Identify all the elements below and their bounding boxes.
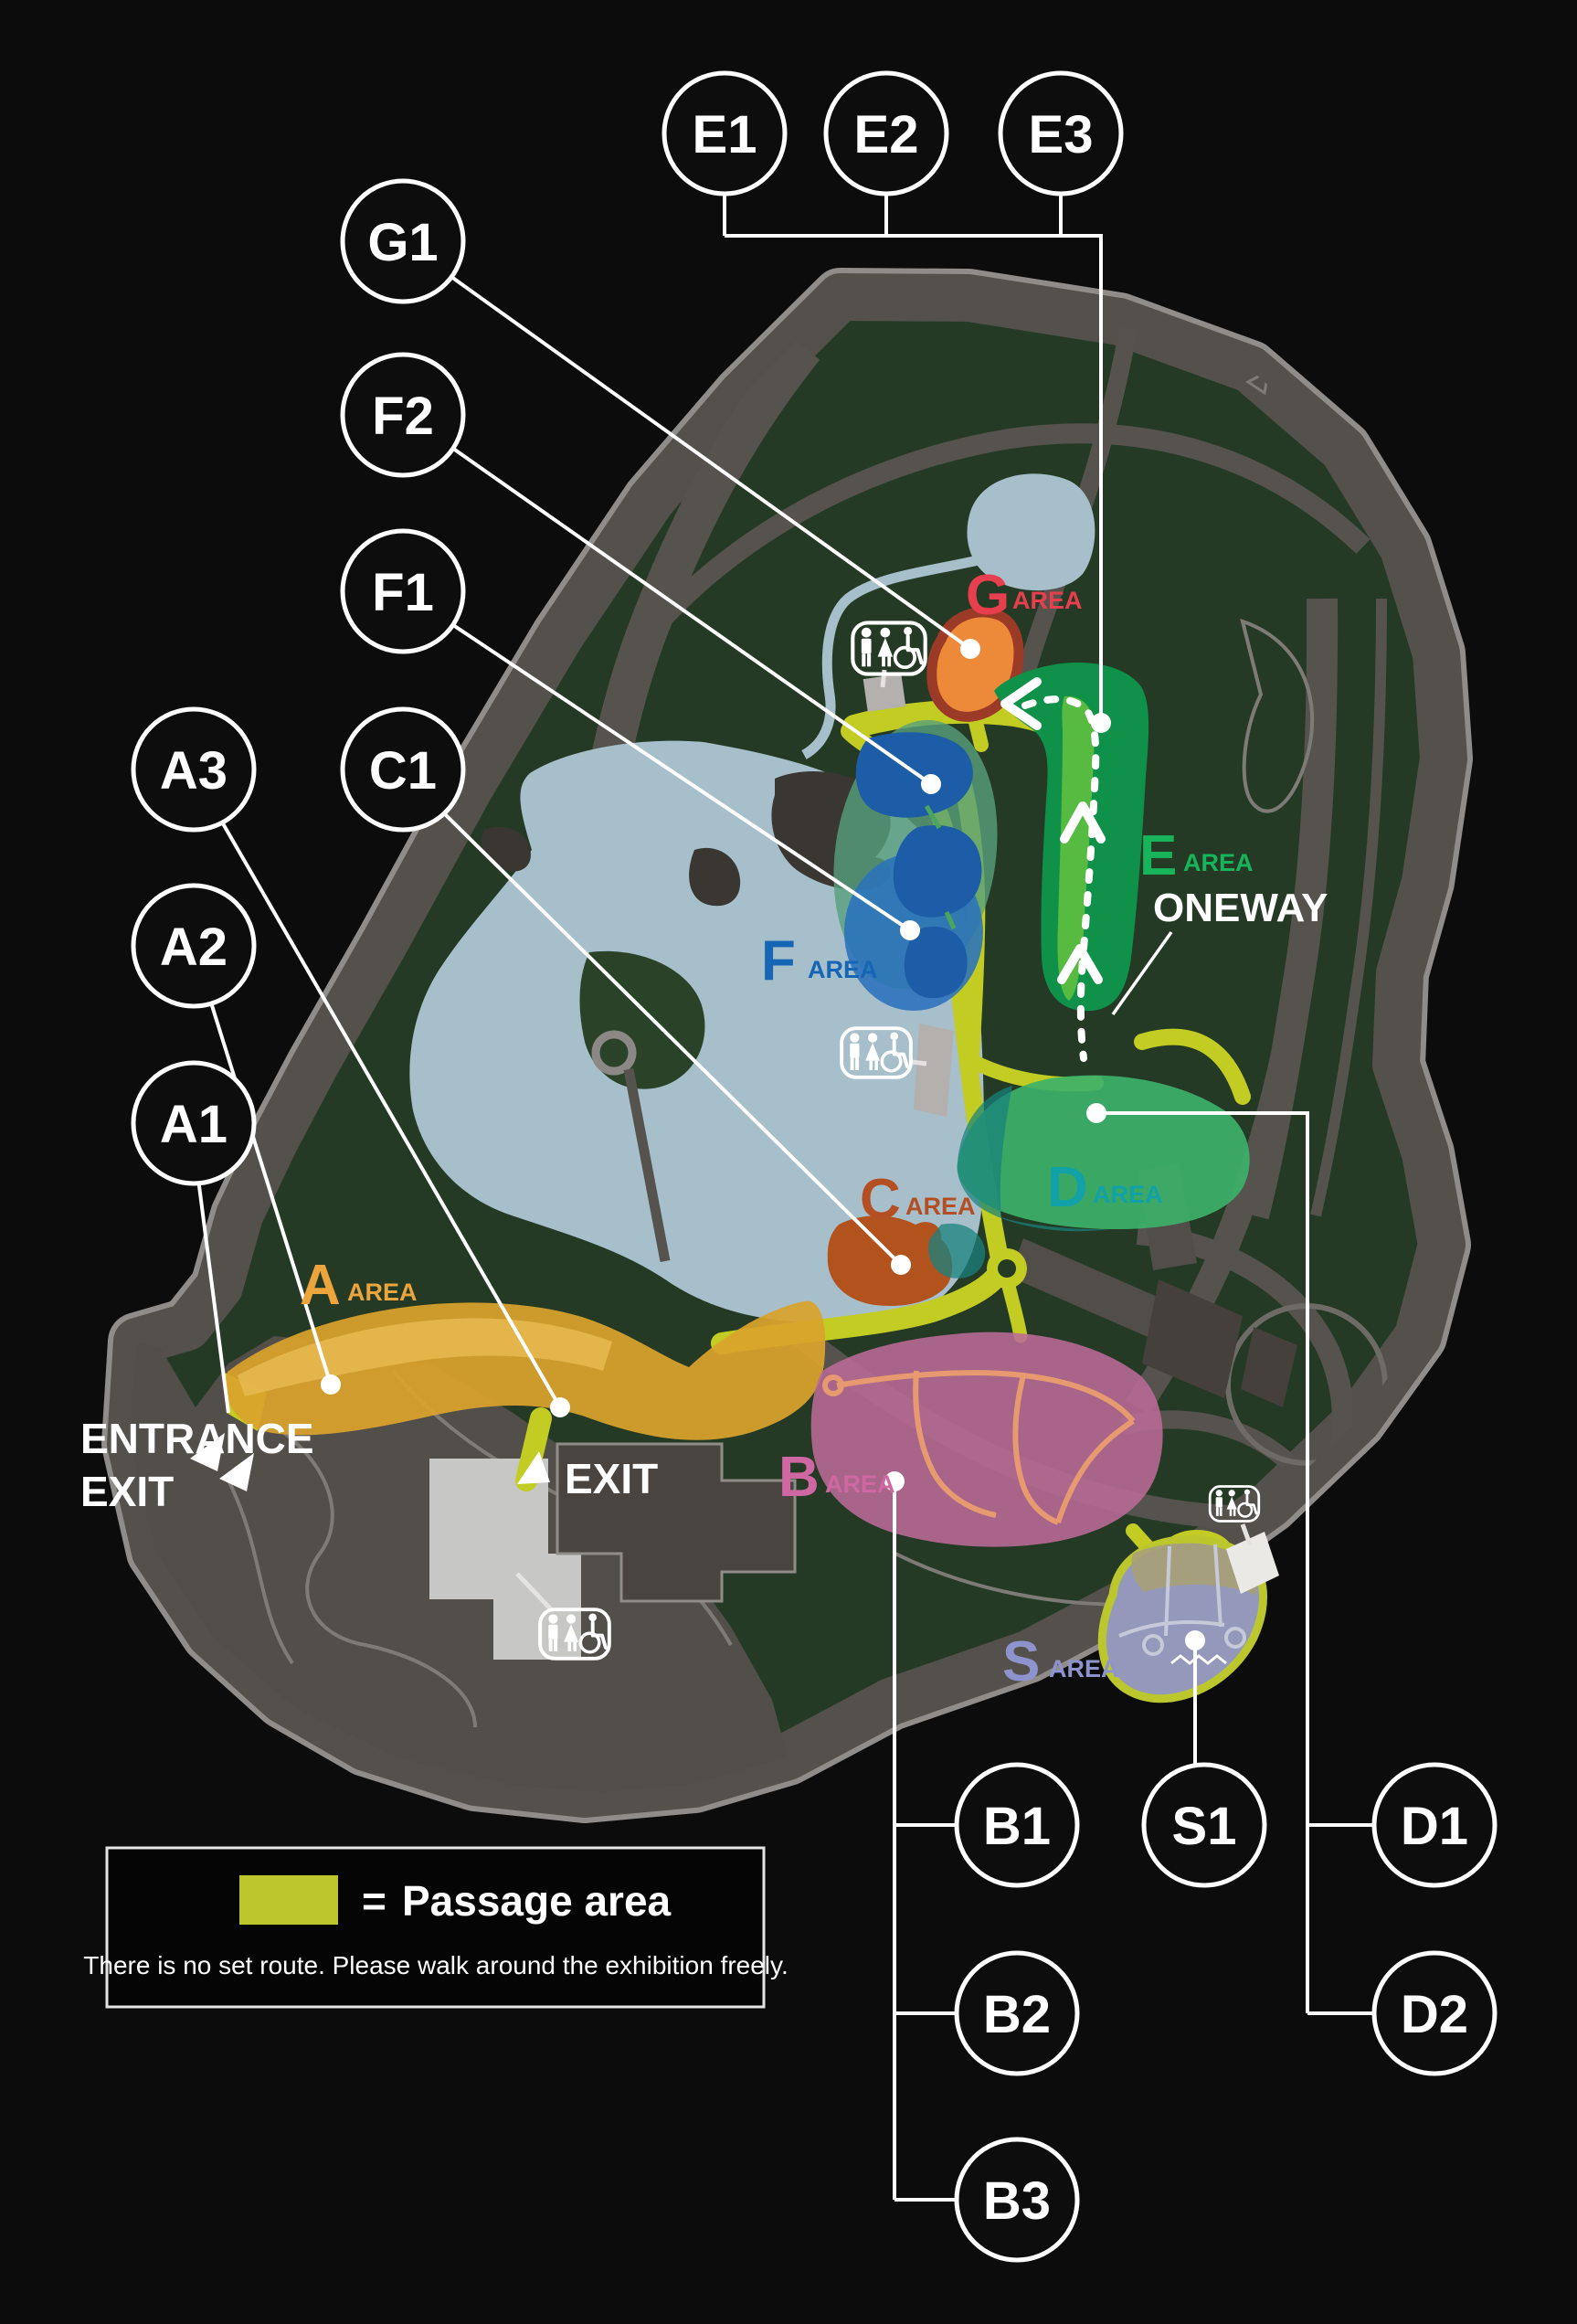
spot-circle-e1-label: E1: [693, 105, 757, 164]
spot-circle-e3: E3: [1000, 73, 1121, 194]
area-suffix-b: AREA: [825, 1470, 895, 1498]
area-suffix-f: AREA: [808, 956, 878, 983]
spot-circle-a1: A1: [133, 1063, 254, 1183]
spot-circle-a3-label: A3: [160, 741, 228, 801]
spot-circle-b3: B3: [957, 2139, 1077, 2260]
area-letter-b: B: [778, 1446, 820, 1509]
spot-circle-a2-label: A2: [160, 918, 228, 977]
area-suffix-g: AREA: [1012, 587, 1083, 614]
legend: = Passage area There is no set route. Pl…: [83, 1848, 788, 2007]
spot-circle-d2: D2: [1374, 1953, 1495, 2074]
spot-circle-g1: G1: [343, 181, 463, 302]
area-suffix-s: AREA: [1049, 1655, 1119, 1682]
spot-circle-a2: A2: [133, 886, 254, 1006]
exit-south-label: EXIT: [565, 1455, 658, 1502]
spot-circle-c1: C1: [343, 709, 463, 830]
spot-circle-f2: F2: [343, 355, 463, 475]
spot-circle-c1-label: C1: [369, 741, 437, 801]
area-suffix-d: AREA: [1093, 1181, 1163, 1208]
legend-note: There is no set route. Please walk aroun…: [83, 1951, 788, 1979]
area-letter-d: D: [1047, 1156, 1088, 1219]
spot-circle-d1: D1: [1374, 1765, 1495, 1885]
area-letter-s: S: [1002, 1630, 1040, 1693]
spot-circle-s1: S1: [1144, 1765, 1265, 1885]
spot-circle-a3: A3: [133, 709, 254, 830]
area-suffix-a: AREA: [347, 1279, 418, 1306]
spot-circle-b1-label: B1: [983, 1797, 1051, 1856]
spot-circle-s1-label: S1: [1172, 1797, 1237, 1856]
spot-circle-f1: F1: [343, 531, 463, 652]
spot-circle-d1-label: D1: [1401, 1797, 1468, 1856]
area-suffix-e: AREA: [1183, 849, 1254, 876]
area-letter-a: A: [300, 1254, 341, 1317]
area-letter-g: G: [966, 564, 1010, 627]
spot-circle-e3-label: E3: [1029, 105, 1094, 164]
legend-equals: =: [362, 1877, 386, 1925]
spot-circle-f1-label: F1: [372, 563, 434, 622]
spot-circle-a1-label: A1: [160, 1095, 228, 1154]
spot-circle-b2-label: B2: [983, 1985, 1051, 2044]
spot-circle-f2-label: F2: [372, 387, 434, 446]
park-map-poster: G AREA F AREA E AREA D AREA C AREA A ARE…: [0, 0, 1577, 2324]
area-letter-c: C: [860, 1168, 901, 1231]
legend-swatch: [239, 1875, 338, 1925]
spot-circle-d2-label: D2: [1401, 1985, 1468, 2044]
oneway-label: ONEWAY: [1153, 886, 1328, 930]
spot-circle-e2: E2: [826, 73, 947, 194]
area-letter-e: E: [1139, 824, 1177, 887]
map-canvas: G AREA F AREA E AREA D AREA C AREA A ARE…: [0, 0, 1577, 2324]
spot-circle-b2: B2: [957, 1953, 1077, 2074]
area-suffix-c: AREA: [905, 1193, 976, 1220]
spot-circle-e1: E1: [664, 73, 785, 194]
spot-circle-e2-label: E2: [854, 105, 919, 164]
spot-circle-g1-label: G1: [367, 213, 438, 272]
area-letter-f: F: [761, 929, 796, 992]
legend-passage-label: Passage area: [402, 1877, 672, 1925]
legend-box: [107, 1848, 764, 2007]
spot-circle-b1: B1: [957, 1765, 1077, 1885]
entrance-exit-label: EXIT: [80, 1468, 174, 1515]
spot-circle-b3-label: B3: [983, 2171, 1051, 2231]
